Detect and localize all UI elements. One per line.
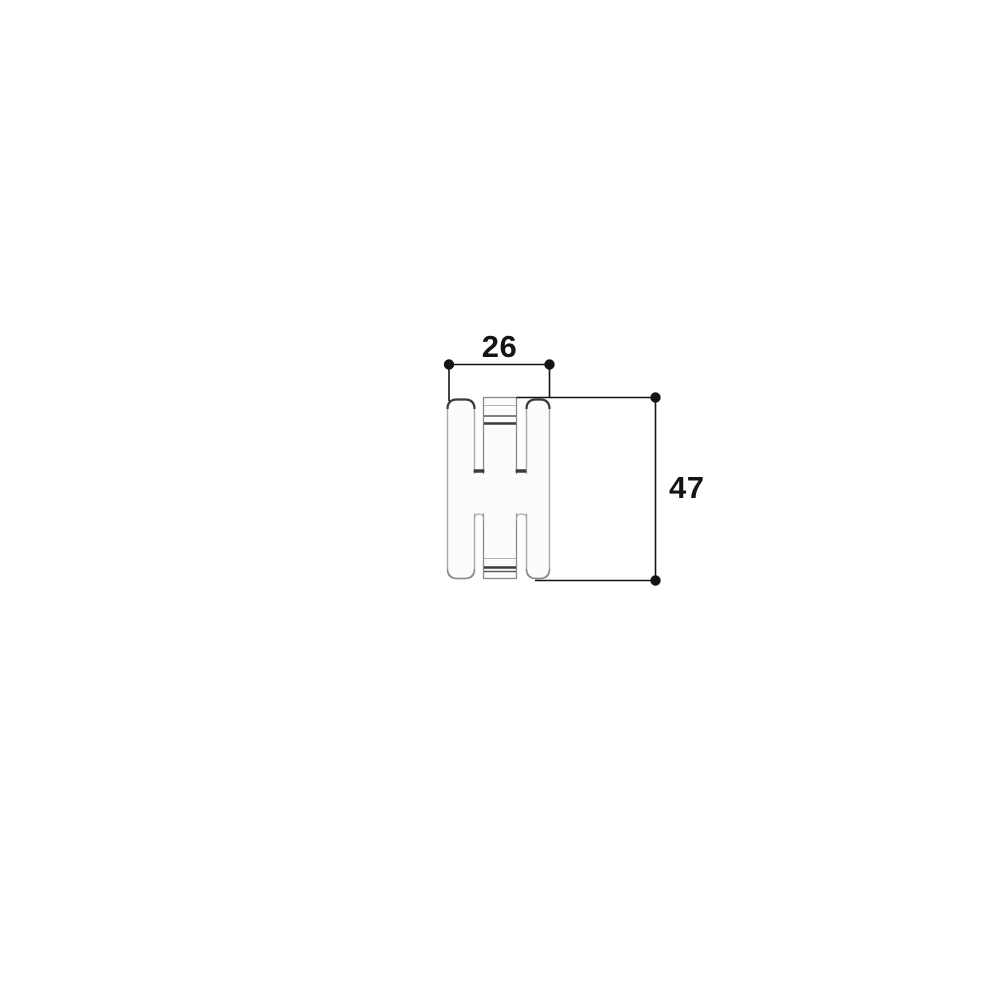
part-web [451, 474, 547, 514]
slot-end-cap [516, 469, 527, 473]
dimension-endpoint-dot [650, 575, 660, 585]
slot-rounded-end [475, 514, 484, 521]
slot-rounded-end [517, 514, 527, 521]
width-dimension: 26 [444, 329, 555, 401]
drawing-page: 26 47 [0, 0, 1000, 1000]
dimension-endpoint-dot [650, 392, 660, 402]
technical-drawing-canvas: 26 47 [0, 0, 1000, 1000]
height-dimension-label: 47 [669, 470, 704, 505]
slot-end-cap [474, 469, 485, 473]
width-dimension-label: 26 [482, 329, 517, 364]
dimension-endpoint-dot [444, 359, 454, 369]
dimension-endpoint-dot [544, 359, 554, 369]
part-profile-drawing [448, 398, 550, 579]
